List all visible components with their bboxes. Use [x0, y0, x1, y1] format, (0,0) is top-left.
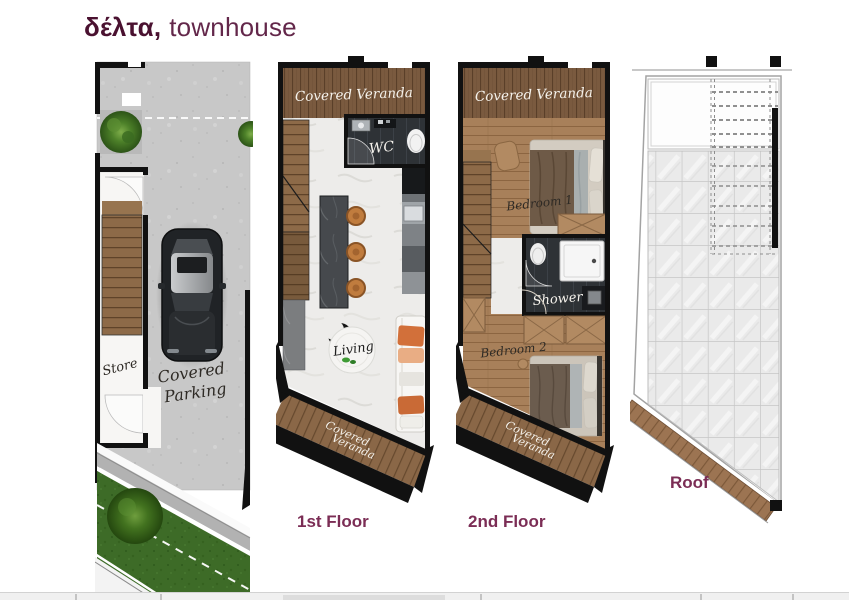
- side-table: [518, 359, 528, 369]
- shower-tray: [560, 241, 604, 281]
- headboard: [597, 356, 602, 436]
- page-title: δέλτα,townhouse: [84, 12, 297, 42]
- stair-landing: [102, 201, 142, 215]
- strip-tick: [480, 594, 482, 600]
- first-floor-caption: 1st Floor: [297, 512, 369, 532]
- page-title-name: δέλτα,: [84, 12, 161, 42]
- parapet-wall: [772, 108, 778, 248]
- pergola-area: [648, 79, 779, 149]
- roof-caption: Roof: [670, 473, 709, 493]
- staircase: [102, 215, 142, 335]
- strip-segment: [283, 595, 445, 600]
- bush-lawn: [107, 488, 163, 544]
- page-title-type: townhouse: [169, 12, 297, 42]
- staircase: [463, 150, 491, 298]
- dresser: [558, 214, 606, 236]
- strip-tick: [700, 594, 702, 600]
- plant-sprig: [342, 358, 350, 363]
- pillow: [589, 148, 605, 183]
- roof-plan: [630, 54, 794, 594]
- kitchen-sink: [404, 206, 423, 221]
- roof-post: [770, 56, 781, 67]
- wc-label: WC: [368, 139, 395, 158]
- strip-tick: [792, 594, 794, 600]
- pillow: [583, 362, 598, 393]
- roof-post: [770, 500, 782, 511]
- window-gap: [568, 62, 592, 68]
- shower-drain: [592, 259, 596, 263]
- wall-notch-top: [128, 57, 141, 67]
- wc-counter: [374, 119, 396, 128]
- second-floor-plan: Covered Veranda Bedroom 1: [456, 54, 614, 546]
- wc-room: WC: [344, 114, 430, 168]
- tv-wall: [283, 300, 305, 370]
- roof-post: [706, 56, 717, 67]
- bush-front-left: [100, 111, 142, 153]
- bottom-strip: [0, 592, 849, 600]
- second-floor-caption: 2nd Floor: [468, 512, 545, 532]
- kitchen-counter: [402, 168, 425, 294]
- staircase: [283, 120, 309, 300]
- hall-floor: [491, 238, 522, 314]
- first-floor-plan: Covered Veranda: [276, 54, 434, 546]
- bar-stools: [347, 207, 365, 297]
- window-gap: [388, 62, 412, 68]
- ground-floor-plan: Store Covered Parking: [95, 57, 253, 594]
- sofa-cushion: [397, 325, 424, 347]
- shower-room: Shower: [522, 234, 610, 316]
- car: [156, 221, 228, 369]
- sofa: [396, 316, 426, 432]
- pillow: [583, 398, 598, 429]
- strip-tick: [160, 594, 162, 600]
- wall-notch: [122, 93, 141, 106]
- roof-tiles: [648, 151, 779, 502]
- floorplan-sheet: δέλτα,townhouse Store: [0, 0, 849, 600]
- strip-tick: [75, 594, 77, 600]
- kitchen-island: [320, 196, 365, 308]
